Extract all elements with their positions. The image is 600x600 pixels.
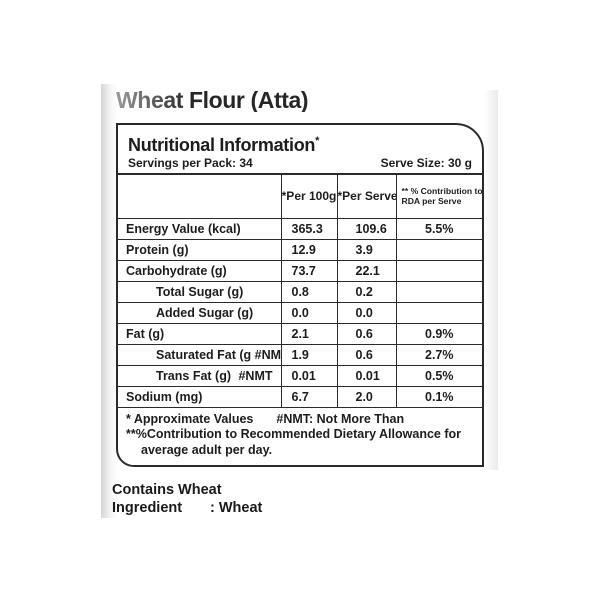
header-row: *Per 100g *Per Serve ** % Contribution t… xyxy=(118,175,482,218)
nutrient-name-cell: Added Sugar (g) xyxy=(118,302,281,323)
rda-cell xyxy=(396,260,482,281)
per-100g-cell: 1.9 xyxy=(281,344,337,365)
nutrition-label: Wheat Flour (Atta) Nutritional Informati… xyxy=(116,88,484,517)
header-nutrient-blank xyxy=(118,175,281,218)
per-100g-cell: 0.8 xyxy=(281,281,337,302)
header-rda-contribution: ** % Contribution toRDA per Serve xyxy=(396,175,482,218)
per-serve-cell: 3.9 xyxy=(337,239,396,260)
nutrition-table-header: *Per 100g *Per Serve ** % Contribution t… xyxy=(118,175,482,218)
rda-cell: 2.7% xyxy=(396,344,482,365)
per-100g-cell: 12.9 xyxy=(281,239,337,260)
nutrient-name-cell: Fat (g) xyxy=(118,323,281,344)
per-serve-cell: 0.6 xyxy=(337,323,396,344)
per-serve-cell: 0.6 xyxy=(337,344,396,365)
table-row: Energy Value (kcal)365.3109.65.5% xyxy=(118,218,482,239)
rda-cell xyxy=(396,281,482,302)
ingredient-value: : Wheat xyxy=(210,500,262,516)
panel-heading-text: Nutritional Information xyxy=(128,135,315,155)
package-edge-shading-right xyxy=(484,90,498,470)
contains-statement: Contains Wheat xyxy=(112,481,484,499)
nutrient-name-cell: Carbohydrate (g) xyxy=(118,260,281,281)
footnote-nmt: #NMT: Not More Than xyxy=(276,412,404,428)
table-row: Carbohydrate (g)73.722.1 xyxy=(118,260,482,281)
per-serve-cell: 22.1 xyxy=(337,260,396,281)
nutrient-name-cell: #NMTTrans Fat (g) xyxy=(118,365,281,386)
product-title: Wheat Flour (Atta) xyxy=(116,88,484,112)
table-row: Protein (g)12.93.9 xyxy=(118,239,482,260)
rda-cell: 5.5% xyxy=(396,218,482,239)
panel-heading: Nutritional Information* xyxy=(118,125,482,155)
nutrition-table: *Per 100g *Per Serve ** % Contribution t… xyxy=(118,175,482,408)
per-100g-cell: 365.3 xyxy=(281,218,337,239)
table-row: #NMTTrans Fat (g)0.010.010.5% xyxy=(118,365,482,386)
rda-cell: 0.1% xyxy=(396,386,482,407)
table-row: Fat (g)2.10.60.9% xyxy=(118,323,482,344)
footnote-line-1: * Approximate Values #NMT: Not More Than xyxy=(126,412,474,428)
table-row: Sodium (mg)6.72.00.1% xyxy=(118,386,482,407)
header-per-100g: *Per 100g xyxy=(281,175,337,218)
nutrient-name-cell: Sodium (mg) xyxy=(118,386,281,407)
servings-per-pack: Servings per Pack: 34 xyxy=(128,156,253,170)
header-rda-line1: ** % Contribution to xyxy=(402,186,483,196)
per-serve-cell: 0.2 xyxy=(337,281,396,302)
ingredient-line: Ingredient: Wheat xyxy=(112,499,484,517)
nmt-suffix: #NMT xyxy=(238,369,280,383)
rda-cell xyxy=(396,239,482,260)
rda-cell xyxy=(396,302,482,323)
table-row: Added Sugar (g)0.00.0 xyxy=(118,302,482,323)
nutrient-name-cell: Energy Value (kcal) xyxy=(118,218,281,239)
nutrient-name-cell: Total Sugar (g) xyxy=(118,281,281,302)
footnote-approximate-values: * Approximate Values xyxy=(126,412,253,428)
rda-cell: 0.9% xyxy=(396,323,482,344)
rda-cell: 0.5% xyxy=(396,365,482,386)
per-100g-cell: 73.7 xyxy=(281,260,337,281)
per-100g-cell: 6.7 xyxy=(281,386,337,407)
nutrient-name-cell: Saturated Fat (g #NMT) xyxy=(118,344,281,365)
header-rda-line2: RDA per Serve xyxy=(402,196,462,206)
nutrition-table-body: Energy Value (kcal)365.3109.65.5%Protein… xyxy=(118,218,482,407)
per-100g-cell: 0.0 xyxy=(281,302,337,323)
footnotes: * Approximate Values #NMT: Not More Than… xyxy=(118,408,482,466)
per-100g-cell: 2.1 xyxy=(281,323,337,344)
footnote-rda-line1: **%Contribution to Recommended Dietary A… xyxy=(126,427,474,443)
serve-size: Serve Size: 30 g xyxy=(381,156,472,170)
per-serve-cell: 109.6 xyxy=(337,218,396,239)
per-serve-cell: 0.0 xyxy=(337,302,396,323)
label-footer: Contains Wheat Ingredient: Wheat xyxy=(112,481,484,517)
nutrient-name-cell: Protein (g) xyxy=(118,239,281,260)
per-100g-cell: 0.01 xyxy=(281,365,337,386)
per-serve-cell: 0.01 xyxy=(337,365,396,386)
ingredient-label: Ingredient xyxy=(112,499,210,517)
nutrition-panel: Nutritional Information* Servings per Pa… xyxy=(116,123,484,467)
header-per-serve: *Per Serve xyxy=(337,175,396,218)
table-row: Total Sugar (g)0.80.2 xyxy=(118,281,482,302)
table-row: Saturated Fat (g #NMT)1.90.62.7% xyxy=(118,344,482,365)
footnote-rda-line2: average adult per day. xyxy=(126,443,474,459)
per-serve-cell: 2.0 xyxy=(337,386,396,407)
heading-asterisk: * xyxy=(315,135,319,147)
servings-row: Servings per Pack: 34 Serve Size: 30 g xyxy=(118,155,482,175)
